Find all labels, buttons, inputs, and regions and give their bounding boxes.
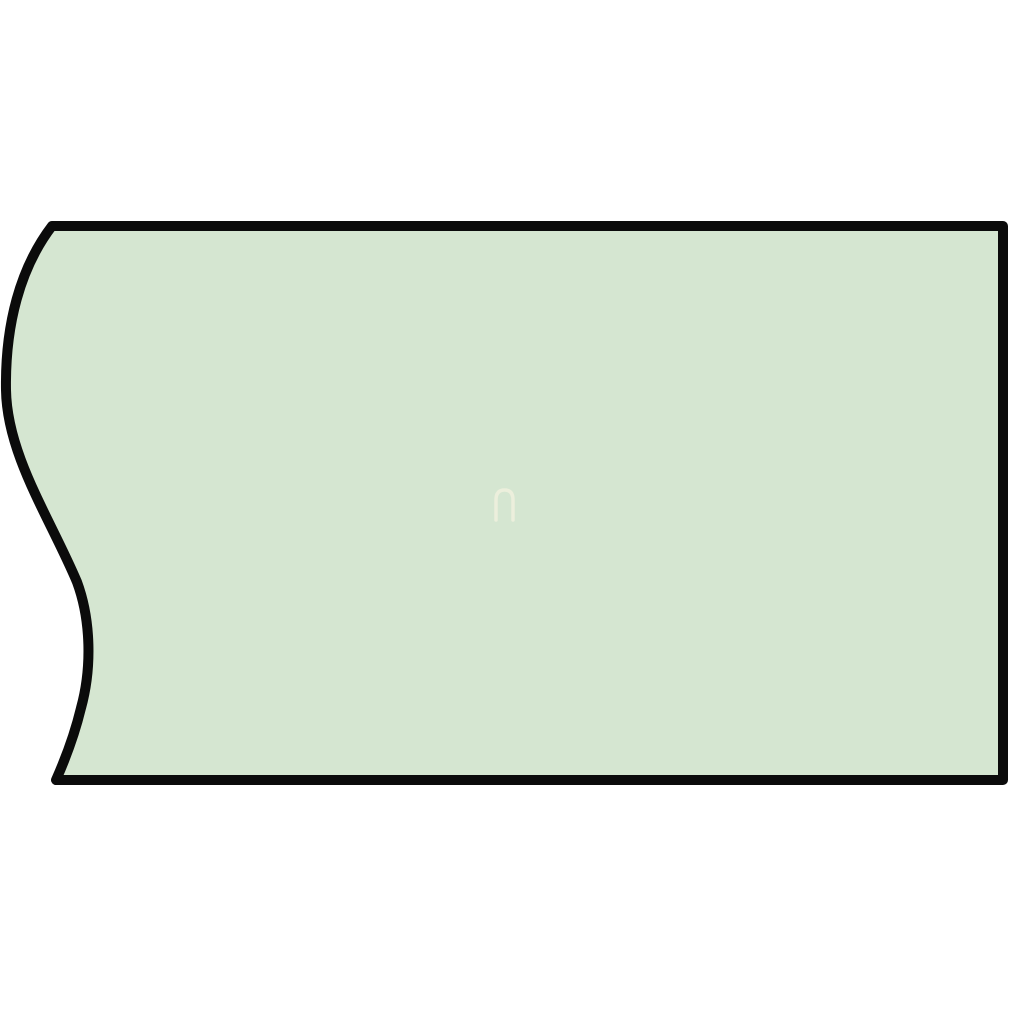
drawing-canvas xyxy=(0,0,1010,1010)
cross-section-drawing xyxy=(0,0,1010,1010)
bar-cross-section-shape xyxy=(6,226,1003,780)
